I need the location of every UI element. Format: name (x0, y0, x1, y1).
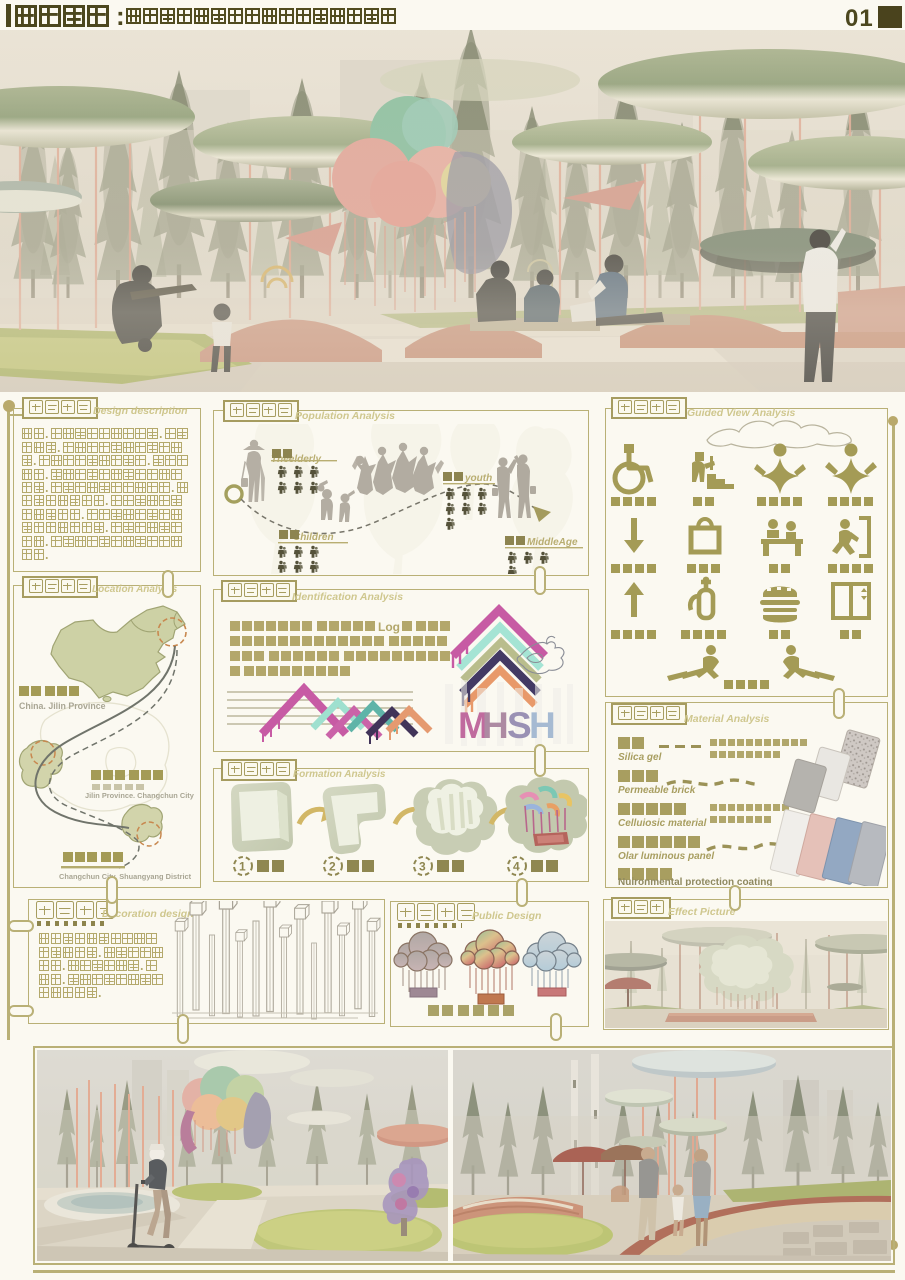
svg-text:H: H (482, 705, 507, 746)
svg-text:Jilin Province. Changchun City: Jilin Province. Changchun City (85, 791, 195, 800)
svg-text:Nuironmental protection coatin: Nuironmental protection coating (618, 877, 772, 886)
svg-text:MiddleAge: MiddleAge (527, 537, 578, 548)
svg-text:Olar luminous panel: Olar luminous panel (618, 851, 714, 862)
svg-text:China. Jilin Province: China. Jilin Province (19, 701, 106, 711)
svg-text:3: 3 (419, 860, 426, 874)
svg-text:Log: Log (378, 620, 400, 634)
svg-text:Silica gel: Silica gel (618, 752, 662, 763)
svg-text:1: 1 (239, 860, 246, 874)
svg-text:4: 4 (513, 860, 520, 874)
svg-text:S: S (507, 705, 531, 746)
svg-text:Permeable brick: Permeable brick (618, 785, 696, 796)
svg-text:2: 2 (329, 860, 336, 874)
svg-text:youth: youth (464, 473, 492, 484)
svg-text:Changchun City. Shuangyang Dis: Changchun City. Shuangyang District (59, 872, 192, 881)
svg-text:Celluiosic material: Celluiosic material (618, 818, 707, 829)
svg-text:Children: Children (293, 532, 334, 543)
svg-text:H: H (529, 705, 554, 746)
